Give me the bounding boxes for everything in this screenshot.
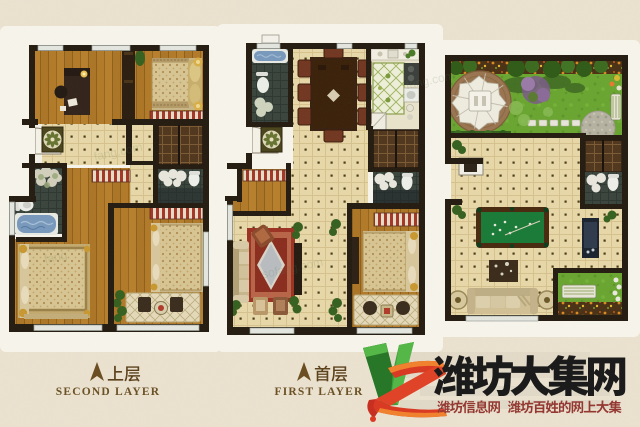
svg-text:FIRST LAYER: FIRST LAYER xyxy=(275,386,364,398)
svg-text:SECOND LAYER: SECOND LAYER xyxy=(56,386,160,398)
